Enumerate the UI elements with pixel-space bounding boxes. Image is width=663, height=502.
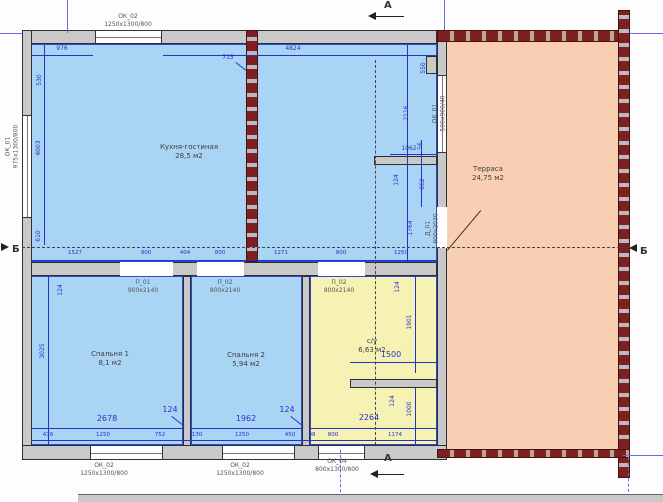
- terrace-label: Терраса 24,75 м2: [428, 165, 548, 183]
- dim-1000: 1000: [407, 389, 413, 429]
- door-gap-p02a: [197, 262, 244, 276]
- section-a-top-label: А: [384, 1, 392, 11]
- label-p01: П_01 900х2140: [103, 279, 183, 294]
- dim-bot-1250b: 1250: [224, 433, 260, 439]
- dim-bot-800: 800: [315, 433, 351, 439]
- ok02-top-mark: ОК_02: [68, 13, 188, 21]
- dim-124-wall2: 124: [267, 406, 307, 414]
- dim-row-800a: 800: [200, 251, 240, 257]
- terrace-area-label: 24,75 м2: [428, 174, 548, 183]
- dim-line-bottom: [31, 440, 437, 441]
- dim-bot-476: 476: [30, 433, 66, 439]
- wall-b1-b2: [183, 276, 191, 446]
- dim-row-1527: 1527: [55, 251, 95, 257]
- dim-line-interior: [31, 260, 437, 261]
- dim-line-2678: [31, 428, 183, 429]
- dim-662: 662: [420, 164, 426, 204]
- dim-bot-752: 752: [142, 433, 178, 439]
- dim-56: 56: [418, 126, 424, 166]
- section-b-left-label: Б: [12, 245, 20, 255]
- dim-124-bath-bottom: 124: [390, 381, 396, 421]
- dim-715: 715: [208, 55, 248, 61]
- dim-1962: 1962: [226, 415, 266, 423]
- dim-line-top-b: [163, 55, 437, 56]
- terrace-top-wall: [437, 30, 630, 42]
- dim-line-1062: [390, 154, 437, 155]
- ok02-bottom2-size: 1250х1300/800: [180, 470, 300, 478]
- dim-4003: 4003: [36, 128, 42, 168]
- dim-1901: 1901: [407, 302, 413, 342]
- axis-line-top-right: [630, 33, 663, 34]
- section-line-a: [375, 60, 376, 445]
- dim-530: 530: [37, 60, 43, 100]
- dim-1500: 1500: [371, 351, 411, 359]
- dim-124-kitchen: 124: [394, 160, 400, 200]
- dim-bot-1250a: 1250: [85, 433, 121, 439]
- dim-610: 610: [36, 216, 42, 256]
- window-top: [95, 30, 162, 44]
- section-line-b: [22, 247, 630, 248]
- p01-size: 900х2140: [103, 287, 183, 295]
- bedroom1-name: Спальня 1: [60, 350, 160, 359]
- axis-line-bottom-right: [623, 455, 663, 456]
- kitchen-label: Кухня-гостиная 28,5 м2: [129, 143, 249, 161]
- label-d01: Д_01 900х2030: [425, 189, 440, 269]
- dim-line-3025: [48, 276, 49, 445]
- dim-976: 976: [42, 46, 82, 52]
- floor-plan: Кухня-гостиная 28,5 м2 Терраса 24,75 м2 …: [0, 0, 663, 502]
- window-bottom-1: [90, 445, 163, 460]
- dim-row-1271: 1271: [261, 251, 301, 257]
- p02b-size: 800х2140: [299, 287, 379, 295]
- kitchen-stub-wall: [374, 156, 437, 165]
- label-ok02-top: ОК_02 1250х1300/800: [68, 13, 188, 28]
- bedroom1-label: Спальня 1 8,1 м2: [60, 350, 160, 368]
- dim-line-top-a: [32, 55, 93, 56]
- ok01-left-size: 975х1300/800: [12, 107, 20, 187]
- dim-3025: 3025: [40, 331, 46, 371]
- d01-size: 900х2030: [432, 189, 440, 269]
- terrace-name: Терраса: [428, 165, 548, 174]
- label-ok01-right: ОК_01 500х900/40: [432, 74, 447, 154]
- dim-2116: 2116: [404, 93, 410, 133]
- p02a-mark: П_02: [185, 279, 265, 287]
- dim-1764: 1764: [408, 208, 414, 248]
- window-left: [22, 115, 32, 218]
- p02a-size: 800х2140: [185, 287, 265, 295]
- section-a-top-arrow-line: [374, 16, 404, 17]
- dim-row-1250: 1250: [381, 251, 421, 257]
- dim-124-bedroom1: 124: [58, 270, 64, 310]
- label-ok01-left: ОК_01 975х1300/800: [5, 107, 20, 187]
- dim-124-bath-top: 124: [395, 267, 401, 307]
- dim-550: 550: [421, 48, 427, 88]
- ok01-right-mark: ОК_01: [432, 74, 440, 154]
- bottom-edge-band: [78, 494, 663, 502]
- dim-row-800b: 800: [321, 251, 361, 257]
- dim-4824: 4824: [273, 46, 313, 52]
- bedroom1-area-label: 8,1 м2: [60, 359, 160, 368]
- dim-row-900: 900: [126, 251, 166, 257]
- dim-bot-1174: 1174: [377, 433, 413, 439]
- dim-2264: 2264: [349, 414, 389, 422]
- dim-2678: 2678: [87, 415, 127, 423]
- ok02-top-size: 1250х1300/800: [68, 21, 188, 29]
- section-a-bottom-arrow-line: [376, 474, 404, 475]
- section-a-top-arrowhead: [368, 12, 376, 20]
- label-p02b: П_02 800х2140: [299, 279, 379, 294]
- door-gap-p02b: [318, 262, 365, 276]
- axis-dash-bottom-right: [628, 457, 629, 492]
- bedroom2-name: Спальня 2: [196, 351, 296, 360]
- p01-mark: П_01: [103, 279, 183, 287]
- dim-row-404: 404: [165, 251, 205, 257]
- kitchen-name: Кухня-гостиная: [129, 143, 249, 152]
- dim-line-1901: [415, 276, 416, 373]
- kitchen-area-label: 28,5 м2: [129, 152, 249, 161]
- left-wall: [22, 30, 32, 460]
- section-b-right-arrowhead: [629, 244, 637, 252]
- axis-line-top-a: [444, 0, 445, 30]
- ok01-left-mark: ОК_01: [5, 107, 13, 187]
- terrace-bottom-wall: [437, 449, 630, 458]
- dim-line-1000: [415, 388, 416, 445]
- wall-b2-bath: [302, 276, 310, 446]
- section-a-bottom-label: А: [384, 454, 392, 464]
- label-ok02-bottom1: ОК_02 1250х1300/800: [44, 462, 164, 477]
- section-b-left-arrowhead: [1, 243, 9, 251]
- label-p02a: П_02 800х2140: [185, 279, 265, 294]
- bedroom2-area-label: 5,94 м2: [196, 360, 296, 369]
- dim-line-2264: [310, 428, 437, 429]
- dim-124-wall1: 124: [150, 406, 190, 414]
- section-a-bottom-arrowhead: [370, 470, 378, 478]
- dim-line-1962: [191, 428, 302, 429]
- dim-line-left: [44, 45, 45, 245]
- bedroom2-label: Спальня 2 5,94 м2: [196, 351, 296, 369]
- bathroom-name: с/у: [332, 337, 412, 346]
- ok04-mark: ОК_04: [287, 458, 387, 466]
- dim-bot-130: 130: [179, 433, 215, 439]
- window-bottom-2: [222, 445, 295, 460]
- ok01-right-size: 500х900/40: [439, 74, 447, 154]
- ok02-bottom2-mark: ОК_02: [180, 462, 300, 470]
- door-gap-p01: [120, 262, 173, 276]
- axis-line-left: [0, 33, 22, 34]
- label-ok02-bottom2: ОК_02 1250х1300/800: [180, 462, 300, 477]
- ok02-bottom1-mark: ОК_02: [44, 462, 164, 470]
- dim-line-1500: [350, 362, 437, 363]
- top-wall: [22, 30, 437, 44]
- section-b-right-label: Б: [640, 247, 648, 257]
- ok02-bottom1-size: 1250х1300/800: [44, 470, 164, 478]
- top-right-stub: [426, 56, 437, 74]
- terrace-area: [447, 42, 618, 449]
- p02b-mark: П_02: [299, 279, 379, 287]
